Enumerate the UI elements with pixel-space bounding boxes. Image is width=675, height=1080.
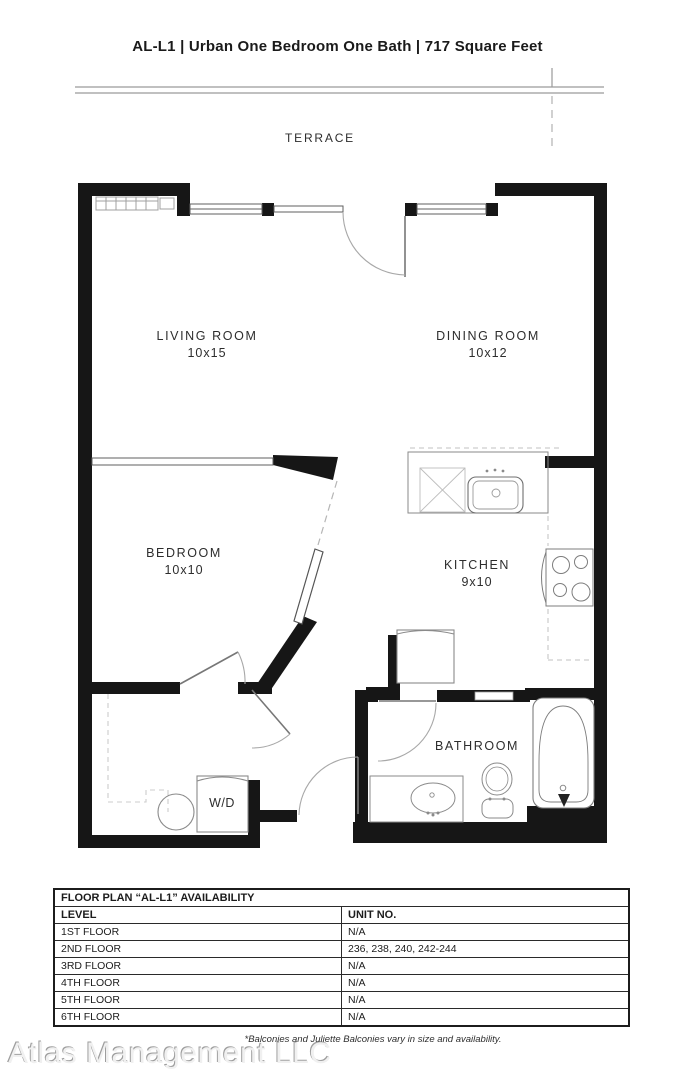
level-cell: 1ST FLOOR (54, 924, 342, 941)
units-cell: N/A (342, 958, 630, 975)
table-row: 5TH FLOOR N/A (54, 992, 629, 1009)
closet-dashed-line (108, 694, 168, 812)
room-label-living-room: LIVING ROOM 10x15 (157, 328, 258, 362)
availability-table-title-row: FLOOR PLAN “AL-L1” AVAILABILITY (54, 889, 629, 907)
vanity-sink-icon (370, 776, 463, 822)
bathtub-icon (533, 698, 594, 808)
stove-icon (542, 549, 594, 606)
room-label-dining-room: DINING ROOM 10x12 (436, 328, 540, 362)
bedroom-door-icon (180, 652, 245, 684)
kitchen-sink-icon (468, 469, 523, 513)
window-living-room-icon (190, 204, 262, 214)
units-cell: N/A (342, 992, 630, 1009)
sliding-door-icon (294, 481, 337, 624)
room-label-terrace: TERRACE (285, 130, 355, 147)
column-header-level: LEVEL (54, 907, 342, 924)
units-cell: N/A (342, 924, 630, 941)
washer-icon (158, 794, 194, 830)
balcony-disclaimer-note: *Balconies and Juliette Balconies vary i… (212, 1034, 534, 1045)
table-row: 6TH FLOOR N/A (54, 1009, 629, 1027)
level-cell: 6TH FLOOR (54, 1009, 342, 1027)
terrace-door-icon (343, 212, 405, 277)
availability-table-header-row: LEVEL UNIT NO. (54, 907, 629, 924)
level-cell: 5TH FLOOR (54, 992, 342, 1009)
floor-plan-page: AL-L1 | Urban One Bedroom One Bath | 717… (0, 0, 675, 1080)
table-row: 4TH FLOOR N/A (54, 975, 629, 992)
table-row: 2ND FLOOR 236, 238, 240, 242-244 (54, 941, 629, 958)
bathroom-niche (475, 692, 513, 700)
window-dining-room-icon (417, 204, 486, 214)
partition-living-bedroom (92, 458, 273, 465)
closet-door-icon (252, 690, 290, 748)
walls (78, 183, 607, 848)
room-label-kitchen: KITCHEN 9x10 (444, 557, 510, 591)
bathroom-door-icon (378, 701, 436, 761)
level-cell: 4TH FLOOR (54, 975, 342, 992)
units-cell: N/A (342, 975, 630, 992)
level-cell: 2ND FLOOR (54, 941, 342, 958)
units-cell: N/A (342, 1009, 630, 1027)
availability-table-title: FLOOR PLAN “AL-L1” AVAILABILITY (54, 889, 629, 907)
column-header-unit-no: UNIT NO. (342, 907, 630, 924)
availability-table: FLOOR PLAN “AL-L1” AVAILABILITY LEVEL UN… (53, 888, 630, 1027)
toilet-icon (482, 763, 513, 818)
room-label-washer-dryer: W/D (209, 795, 235, 812)
entry-door-icon (299, 757, 358, 815)
terrace-boundary-lines (75, 68, 604, 93)
dishwasher-icon (420, 468, 465, 512)
room-label-bathroom: BATHROOM (435, 738, 519, 755)
refrigerator-icon (397, 630, 454, 683)
level-cell: 3RD FLOOR (54, 958, 342, 975)
room-label-bedroom: BEDROOM 10x10 (146, 545, 222, 579)
baseboard-heater-icon (96, 197, 174, 210)
units-cell: 236, 238, 240, 242-244 (342, 941, 630, 958)
table-row: 1ST FLOOR N/A (54, 924, 629, 941)
thin-wall-terrace (274, 206, 343, 212)
table-row: 3RD FLOOR N/A (54, 958, 629, 975)
